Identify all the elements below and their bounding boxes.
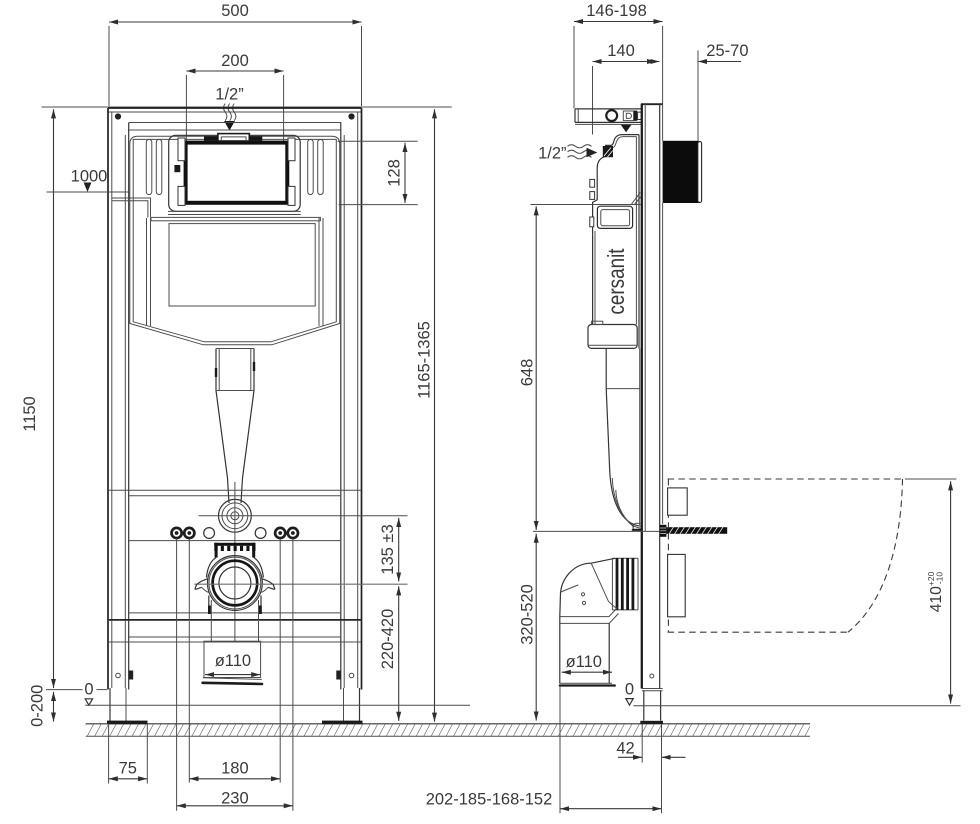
svg-text:230: 230	[221, 790, 249, 808]
svg-text:1165-1365: 1165-1365	[416, 321, 434, 399]
svg-text:146-198: 146-198	[586, 2, 647, 20]
svg-text:25-70: 25-70	[706, 42, 748, 60]
svg-text:0: 0	[84, 681, 93, 699]
svg-text:75: 75	[119, 760, 137, 778]
svg-text:500: 500	[221, 2, 249, 20]
svg-text:220-420: 220-420	[379, 609, 397, 670]
svg-text:ø110: ø110	[215, 652, 251, 670]
svg-text:202-185-168-152: 202-185-168-152	[426, 790, 553, 808]
svg-text:42: 42	[616, 740, 634, 758]
svg-text:0: 0	[625, 680, 634, 698]
svg-text:ø110: ø110	[566, 653, 602, 671]
svg-text:1/2”: 1/2”	[538, 144, 566, 162]
svg-text:cersanit: cersanit	[603, 248, 629, 314]
svg-text:1150: 1150	[21, 396, 39, 431]
svg-text:135 ±3: 135 ±3	[379, 524, 397, 574]
svg-text:200: 200	[221, 52, 249, 70]
svg-text:180: 180	[221, 760, 249, 778]
svg-text:648: 648	[519, 359, 537, 387]
svg-text:128: 128	[385, 159, 403, 187]
svg-text:140: 140	[607, 42, 635, 60]
svg-text:320-520: 320-520	[519, 584, 537, 645]
svg-text:1/2”: 1/2”	[215, 86, 243, 104]
svg-text:410+20-10: 410+20-10	[926, 571, 945, 612]
svg-text:0-200: 0-200	[29, 685, 47, 727]
